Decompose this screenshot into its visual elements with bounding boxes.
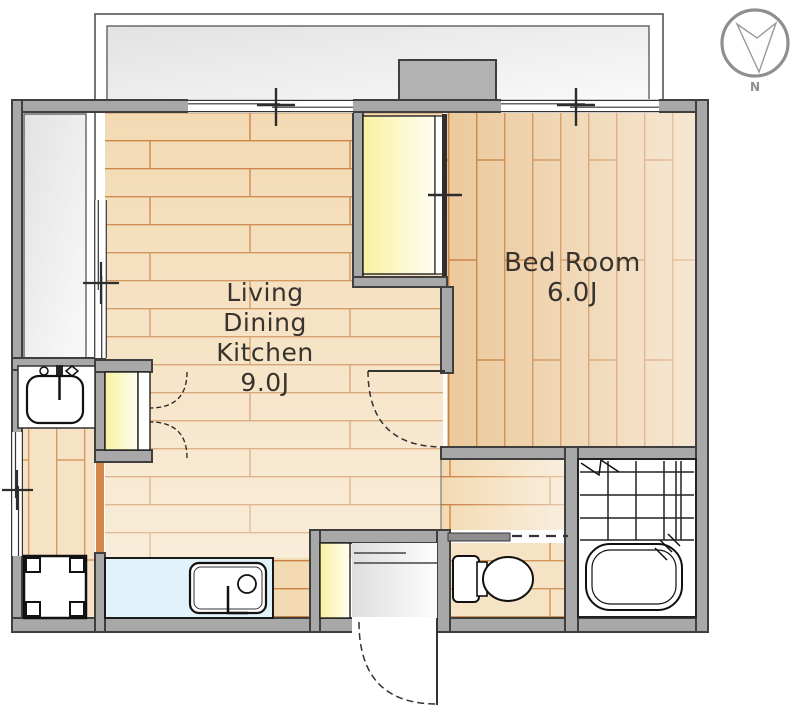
compass-north-label: N — [741, 80, 769, 94]
kitchen-counter — [105, 558, 273, 618]
washbasin — [18, 365, 95, 428]
ldk-room-label: Living Dining Kitchen 9.0J — [150, 278, 380, 398]
ldk-label-size: 9.0J — [150, 368, 380, 398]
ldk-label-line: Kitchen — [150, 338, 380, 368]
bedroom-label-size: 6.0J — [460, 278, 685, 308]
doorway-threshold — [96, 455, 104, 553]
bathroom — [578, 459, 696, 617]
genkan-entrance — [352, 543, 437, 705]
washing-machine-pan — [24, 556, 86, 618]
ldk-label-line: Dining — [150, 308, 380, 338]
top-balcony — [95, 14, 663, 104]
bedroom-label-line: Bed Room — [460, 248, 685, 278]
bathtub — [586, 534, 682, 610]
compass — [722, 10, 788, 76]
floor-plan-drawing — [0, 0, 800, 710]
toilet-sliding-door — [448, 533, 568, 541]
ldk-label-line: Living — [150, 278, 380, 308]
toilet — [453, 556, 533, 602]
floor-plan: Living Dining Kitchen 9.0J Bed Room 6.0J… — [0, 0, 800, 710]
bedroom-room-label: Bed Room 6.0J — [460, 248, 685, 308]
kitchen-sink — [190, 563, 266, 613]
left-balcony — [14, 104, 95, 366]
